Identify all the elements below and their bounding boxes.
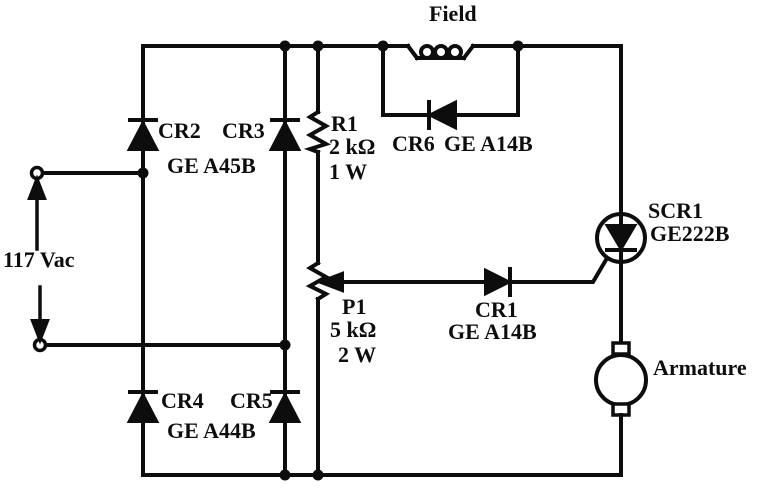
cr6-name-label: CR6 <box>392 133 435 155</box>
gate-wire <box>340 253 610 282</box>
bridge-top-part-label: GE A45B <box>167 155 256 177</box>
cr1-name-label: CR1 <box>475 299 518 321</box>
r1-resistor-symbol <box>310 112 326 152</box>
cr3-label: CR3 <box>222 120 265 142</box>
vac-source-label: 117 Vac <box>3 249 75 271</box>
cr5-diode-symbol <box>272 392 298 421</box>
armature-motor-symbol <box>596 343 646 475</box>
cr3-diode-symbol <box>272 120 298 149</box>
scr1-symbol <box>597 214 645 345</box>
schematic-drawing <box>0 0 773 499</box>
p1-potentiometer-symbol <box>310 263 342 299</box>
field-coil-symbol <box>408 46 473 58</box>
p1-value-label: 5 kΩ <box>330 319 376 341</box>
cr4-diode-symbol <box>130 392 156 421</box>
scr1-part-label: GE222B <box>650 223 729 245</box>
cr6-diode-symbol <box>429 102 455 128</box>
armature-label: Armature <box>653 357 747 379</box>
r1-value-label: 2 kΩ <box>329 136 375 158</box>
cr5-label: CR5 <box>230 390 273 412</box>
r1-name-label: R1 <box>331 113 358 135</box>
cr6-part-label: GE A14B <box>444 133 533 155</box>
p1-power-label: 2 W <box>338 344 376 366</box>
bridge-bottom-part-label: GE A44B <box>167 420 256 442</box>
cr4-label: CR4 <box>161 390 204 412</box>
junction-dots <box>138 41 524 481</box>
cr1-diode-symbol <box>486 269 510 295</box>
scr1-name-label: SCR1 <box>648 200 703 222</box>
schematic-canvas: Field CR2 CR3 GE A45B R1 2 kΩ 1 W CR6 GE… <box>0 0 773 499</box>
field-label: Field <box>429 3 477 25</box>
cr2-diode-symbol <box>130 120 156 149</box>
cr1-part-label: GE A14B <box>448 321 537 343</box>
cr2-label: CR2 <box>158 120 201 142</box>
r1-power-label: 1 W <box>329 161 367 183</box>
p1-name-label: P1 <box>342 296 366 318</box>
